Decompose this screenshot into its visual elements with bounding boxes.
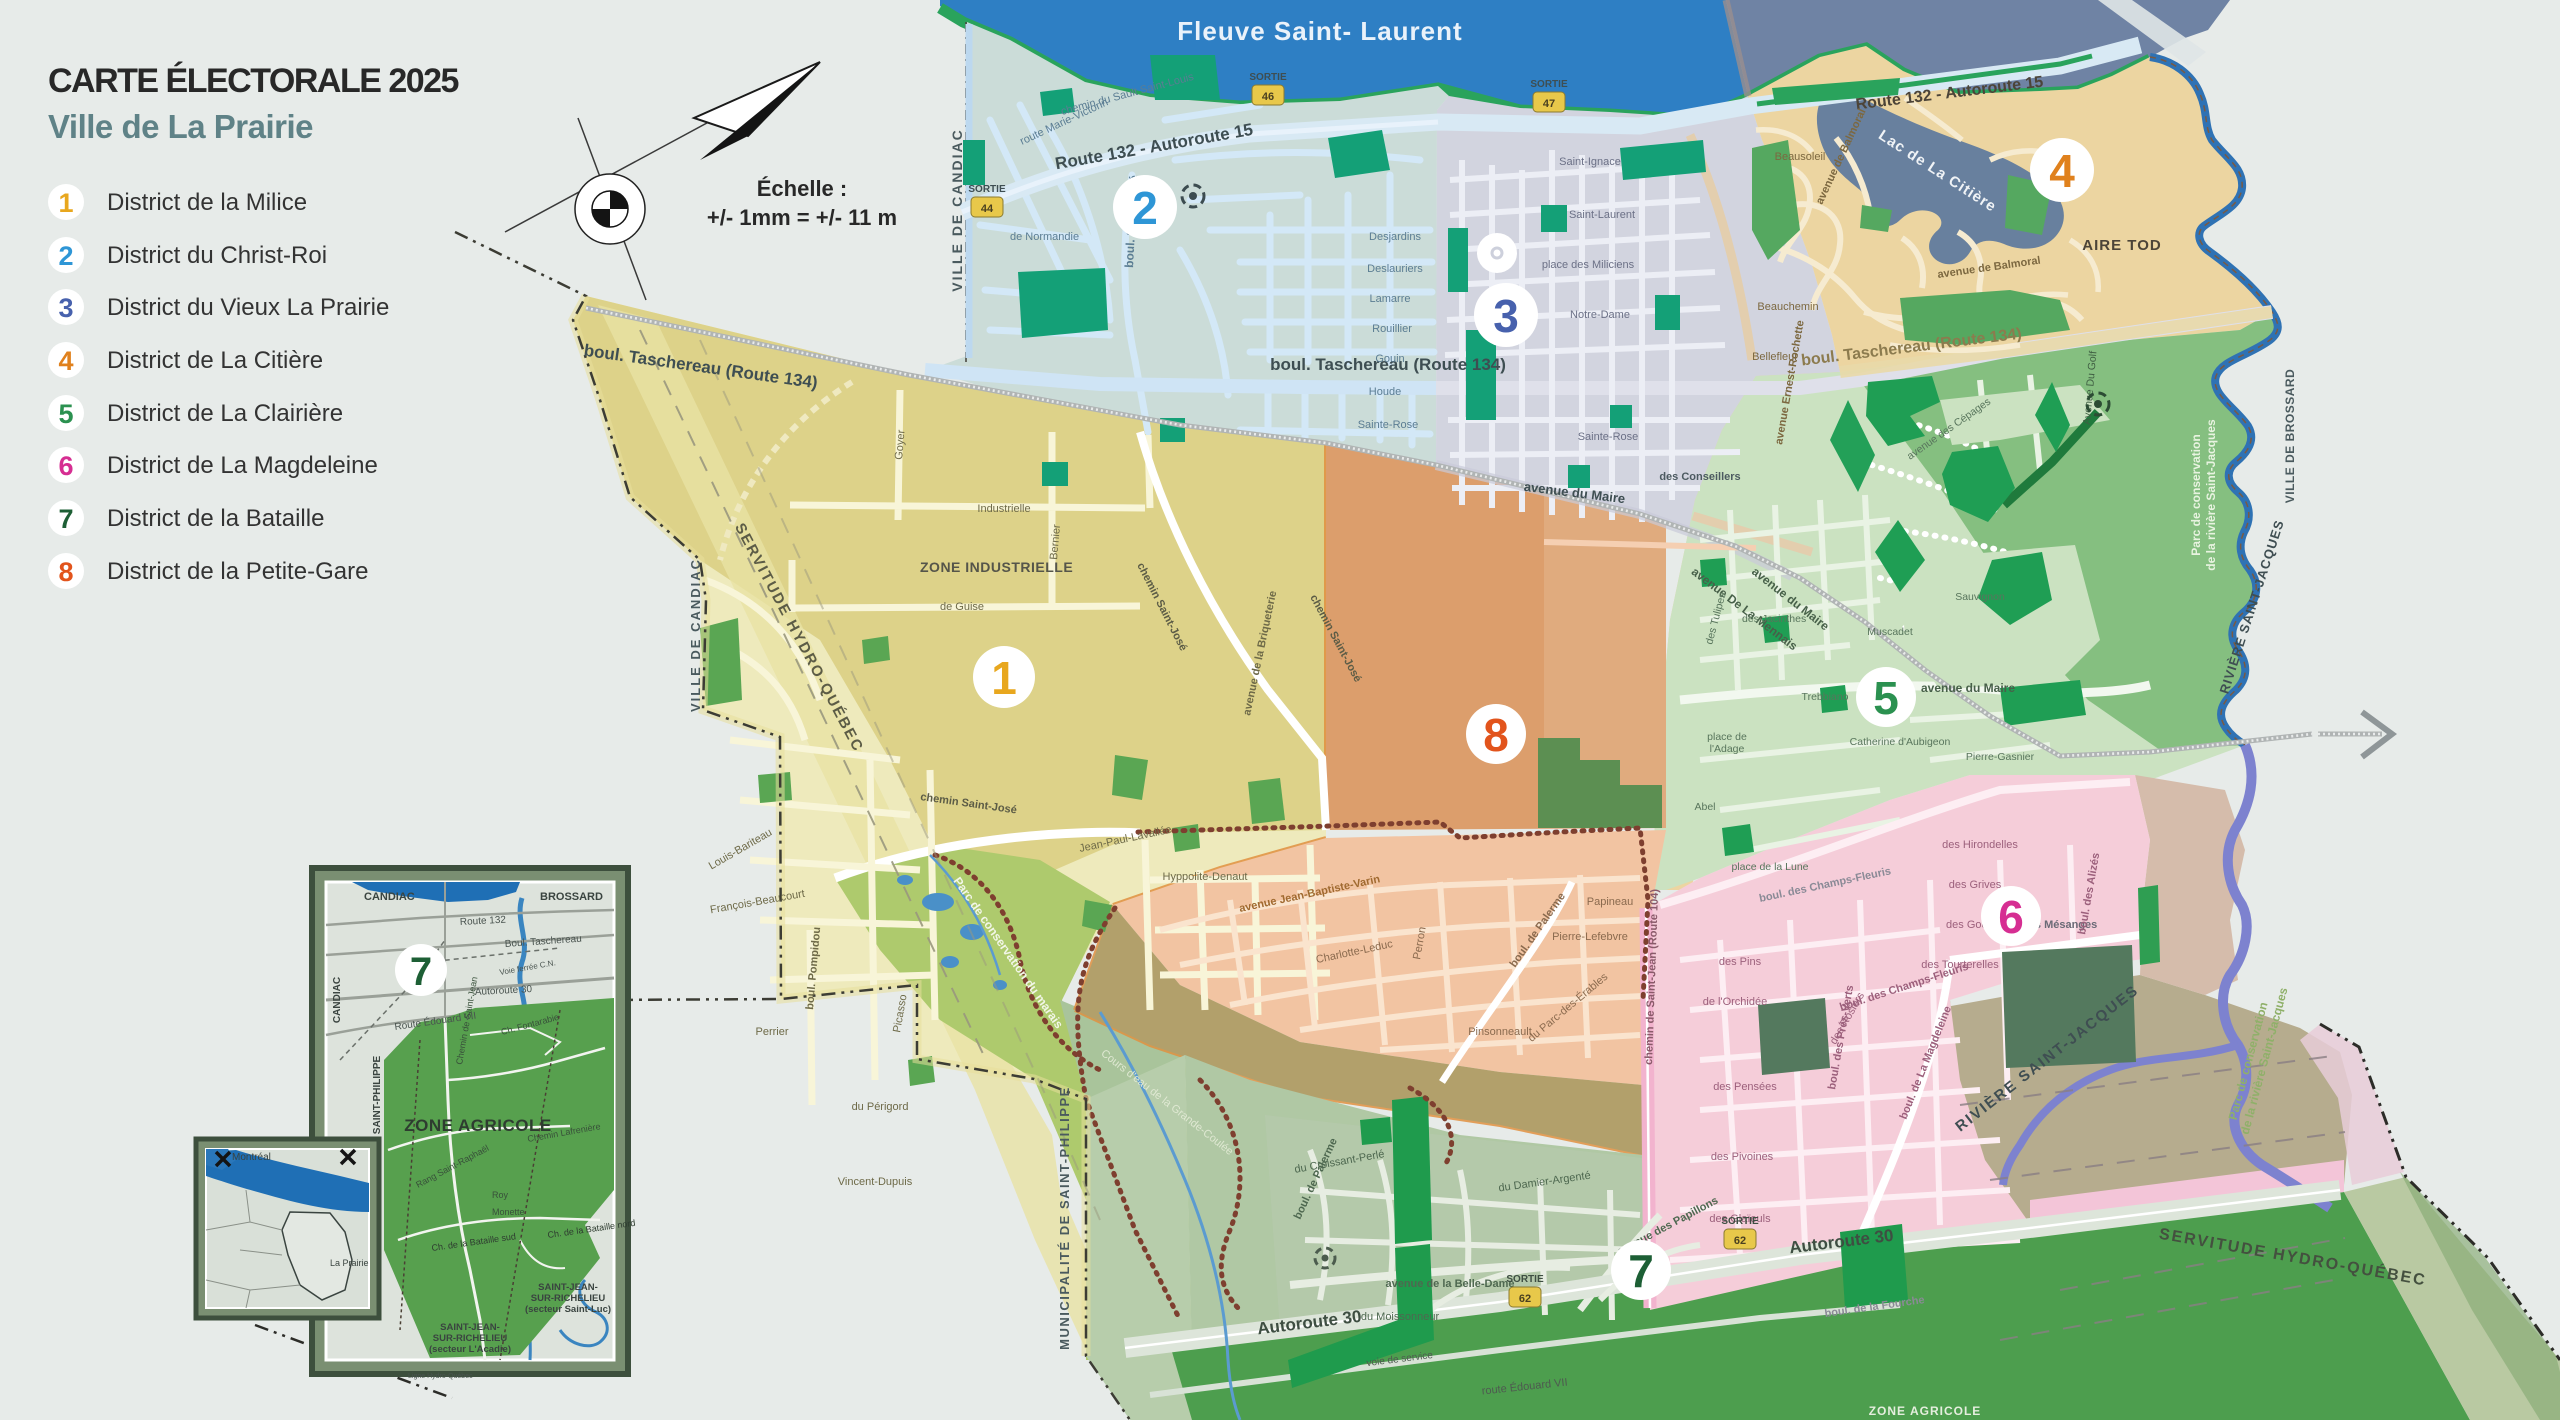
svg-text:District de la Petite-Gare: District de la Petite-Gare	[107, 558, 368, 585]
svg-text:Parc de conservation: Parc de conservation	[2189, 434, 2203, 555]
svg-text:2: 2	[58, 241, 73, 271]
svg-text:District de La Magdeleine: District de La Magdeleine	[107, 452, 378, 479]
svg-text:4: 4	[2049, 145, 2075, 197]
svg-text:SORTIE: SORTIE	[968, 184, 1006, 195]
svg-text:MUNICIPALITÉ DE SAINT-PHILIPPE: MUNICIPALITÉ DE SAINT-PHILIPPE	[1057, 1086, 1072, 1350]
svg-text:Sainte-Rose: Sainte-Rose	[1358, 419, 1419, 431]
svg-text:place de: place de	[1707, 731, 1747, 743]
svg-text:Ligne Hydro-Québec: Ligne Hydro-Québec	[408, 1373, 473, 1380]
svg-text:ZONE AGRICOLE: ZONE AGRICOLE	[1869, 1404, 1982, 1418]
svg-text:SAINT-JEAN-: SAINT-JEAN-	[440, 1322, 500, 1333]
svg-text:place de la Lune: place de la Lune	[1731, 861, 1808, 873]
svg-text:46: 46	[1262, 91, 1274, 103]
svg-text:5: 5	[1873, 672, 1899, 724]
svg-text:Roy: Roy	[492, 1190, 509, 1200]
svg-text:des Conseillers: des Conseillers	[1659, 471, 1740, 483]
svg-text:Papineau: Papineau	[1587, 896, 1634, 908]
svg-text:Vincent-Dupuis: Vincent-Dupuis	[838, 1176, 913, 1188]
svg-text:VILLE DE CANDIAC: VILLE DE CANDIAC	[688, 558, 703, 712]
svg-text:+/- 1mm = +/- 11 m: +/- 1mm = +/- 11 m	[707, 205, 897, 230]
svg-text:District du Christ-Roi: District du Christ-Roi	[107, 242, 327, 269]
svg-text:Gouin: Gouin	[1375, 353, 1404, 365]
svg-text:CARTE ÉLECTORALE 2025: CARTE ÉLECTORALE 2025	[48, 62, 459, 100]
svg-text:7: 7	[1628, 1245, 1654, 1297]
svg-text:Saint-Laurent: Saint-Laurent	[1569, 209, 1635, 221]
svg-text:Beauchemin: Beauchemin	[1757, 301, 1818, 313]
svg-text:de Normandie: de Normandie	[1010, 231, 1079, 243]
svg-text:6: 6	[1998, 891, 2024, 943]
svg-text:place des Miliciens: place des Miliciens	[1542, 259, 1635, 271]
svg-text:62: 62	[1734, 1235, 1746, 1247]
svg-text:Desjardins: Desjardins	[1369, 231, 1421, 243]
svg-text:Sainte-Rose: Sainte-Rose	[1578, 431, 1639, 443]
svg-text:Pinsonneault: Pinsonneault	[1468, 1026, 1532, 1038]
svg-text:CANDIAC: CANDIAC	[332, 977, 343, 1023]
svg-text:des Pensées: des Pensées	[1713, 1081, 1777, 1093]
svg-text:SUR-RICHELIEU: SUR-RICHELIEU	[531, 1293, 606, 1304]
svg-text:Abel: Abel	[1694, 801, 1715, 813]
svg-text:VILLE DE BROSSARD: VILLE DE BROSSARD	[2283, 369, 2297, 504]
svg-text:Deslauriers: Deslauriers	[1367, 263, 1423, 275]
svg-text:SAINT-JEAN-: SAINT-JEAN-	[538, 1282, 598, 1293]
svg-text:Monette: Monette	[492, 1207, 525, 1217]
svg-text:District du Vieux La Prairie: District du Vieux La Prairie	[107, 294, 389, 321]
svg-text:des Grives: des Grives	[1949, 879, 2002, 891]
svg-text:SORTIE: SORTIE	[1506, 1274, 1544, 1285]
svg-text:47: 47	[1543, 98, 1555, 110]
svg-text:7: 7	[410, 950, 432, 994]
svg-text:Perrier: Perrier	[755, 1026, 788, 1038]
svg-text:avenue de la Belle-Dame: avenue de la Belle-Dame	[1385, 1278, 1514, 1290]
svg-text:des Pins: des Pins	[1719, 956, 1762, 968]
svg-text:1: 1	[991, 652, 1017, 704]
svg-text:8: 8	[58, 557, 73, 587]
svg-text:Ville de La Prairie: Ville de La Prairie	[48, 108, 313, 145]
svg-text:VILLE DE CANDIAC: VILLE DE CANDIAC	[949, 128, 965, 291]
svg-text:Beausoleil: Beausoleil	[1775, 151, 1826, 163]
svg-text:Montréal: Montréal	[232, 1152, 271, 1163]
svg-text:44: 44	[981, 203, 994, 215]
svg-text:AIRE TOD: AIRE TOD	[2082, 237, 2161, 254]
svg-text:avenue du Maire: avenue du Maire	[1921, 681, 2015, 695]
svg-text:Pierre-Lefebvre: Pierre-Lefebvre	[1552, 931, 1628, 943]
svg-text:SUR-RICHELIEU: SUR-RICHELIEU	[433, 1333, 508, 1344]
svg-text:3: 3	[58, 293, 73, 323]
svg-text:1: 1	[58, 188, 73, 218]
svg-text:Lamarre: Lamarre	[1370, 293, 1411, 305]
svg-text:Notre-Dame: Notre-Dame	[1570, 309, 1630, 321]
svg-text:SAINT-PHILIPPE: SAINT-PHILIPPE	[372, 1056, 383, 1135]
svg-text:District de La Clairière: District de La Clairière	[107, 400, 343, 427]
svg-text:ZONE INDUSTRIELLE: ZONE INDUSTRIELLE	[920, 559, 1073, 575]
svg-text:Échelle :: Échelle :	[757, 176, 847, 201]
svg-text:Industrielle: Industrielle	[977, 503, 1030, 515]
svg-text:du Périgord: du Périgord	[852, 1101, 909, 1113]
svg-text:ZONE AGRICOLE: ZONE AGRICOLE	[404, 1116, 552, 1135]
svg-text:des Tourterelles: des Tourterelles	[1921, 959, 1999, 971]
svg-text:4: 4	[58, 346, 73, 376]
svg-text:Fleuve Saint- Laurent: Fleuve Saint- Laurent	[1177, 16, 1462, 46]
svg-text:2: 2	[1132, 182, 1158, 234]
svg-text:Houde: Houde	[1369, 386, 1401, 398]
svg-text:des Hirondelles: des Hirondelles	[1942, 839, 2018, 851]
svg-text:District de La Citière: District de La Citière	[107, 347, 323, 374]
svg-text:CANDIAC: CANDIAC	[364, 891, 415, 903]
svg-text:des Pivoines: des Pivoines	[1711, 1151, 1774, 1163]
svg-text:SORTIE: SORTIE	[1249, 72, 1287, 83]
svg-text:Saint-Ignace: Saint-Ignace	[1559, 156, 1621, 168]
svg-text:du Moissonneur: du Moissonneur	[1361, 1311, 1440, 1323]
svg-text:de Guise: de Guise	[940, 601, 984, 613]
svg-text:de la rivière Saint-Jacques: de la rivière Saint-Jacques	[2204, 419, 2218, 571]
svg-text:La Prairie: La Prairie	[330, 1258, 369, 1268]
svg-text:Catherine d'Aubigeon: Catherine d'Aubigeon	[1850, 736, 1951, 748]
svg-text:de l'Orchidée: de l'Orchidée	[1703, 996, 1767, 1008]
svg-text:Trebbiano: Trebbiano	[1802, 691, 1849, 703]
svg-text:Sauvignon: Sauvignon	[1955, 591, 2005, 603]
svg-text:SORTIE: SORTIE	[1530, 79, 1568, 90]
svg-text:Hyppolite-Denaut: Hyppolite-Denaut	[1163, 871, 1248, 883]
svg-text:Pierre-Gasnier: Pierre-Gasnier	[1966, 751, 2035, 763]
svg-text:62: 62	[1519, 1293, 1531, 1305]
svg-text:District de la Milice: District de la Milice	[107, 189, 307, 216]
svg-text:Rouillier: Rouillier	[1372, 323, 1412, 335]
svg-text:7: 7	[58, 504, 73, 534]
svg-text:l'Adage: l'Adage	[1710, 743, 1745, 755]
svg-text:BROSSARD: BROSSARD	[540, 891, 603, 903]
svg-text:SORTIE: SORTIE	[1721, 1216, 1759, 1227]
svg-text:(secteur Saint-Luc): (secteur Saint-Luc)	[525, 1304, 611, 1315]
svg-text:8: 8	[1483, 709, 1509, 761]
svg-text:des Jacinthes: des Jacinthes	[1742, 613, 1806, 625]
svg-text:6: 6	[58, 451, 73, 481]
svg-text:5: 5	[58, 399, 73, 429]
svg-text:District de la Bataille: District de la Bataille	[107, 505, 324, 532]
svg-text:(secteur L'Acadie): (secteur L'Acadie)	[429, 1344, 511, 1355]
svg-text:3: 3	[1493, 290, 1519, 342]
svg-text:Muscadet: Muscadet	[1867, 626, 1913, 638]
